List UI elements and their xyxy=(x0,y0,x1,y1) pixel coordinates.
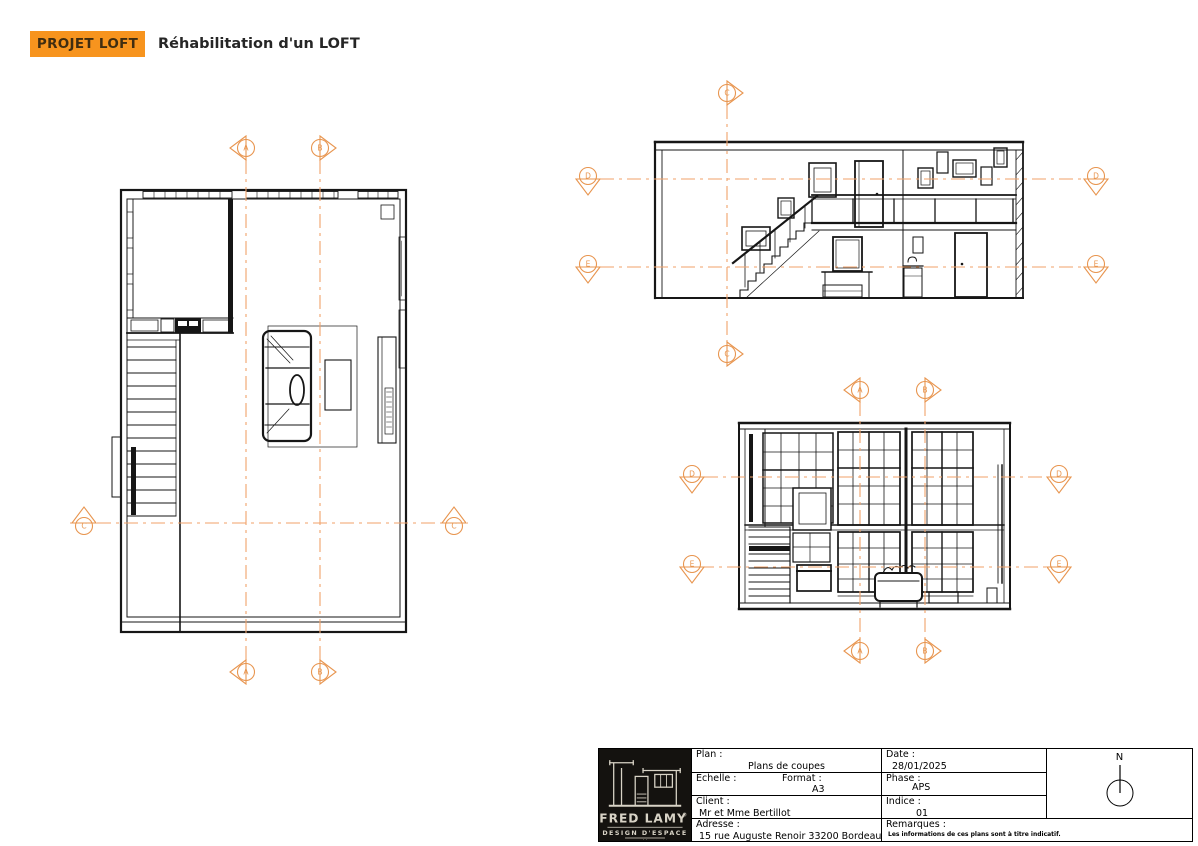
section-marker-e: E xyxy=(1084,256,1108,284)
svg-text:D: D xyxy=(585,172,591,181)
section-marker-e: E xyxy=(680,556,704,584)
svg-text:A: A xyxy=(857,386,863,395)
elevation-view xyxy=(739,423,1010,609)
section-marker-c: C xyxy=(719,342,744,366)
svg-text:A: A xyxy=(243,144,249,153)
section-marker-d: D xyxy=(576,168,600,196)
svg-text:D: D xyxy=(1093,172,1099,181)
drawings-canvas: ABABCCCCDEDEABABDDEE xyxy=(0,0,1198,846)
remarques-label: Remarques : xyxy=(886,820,1188,831)
date-label: Date : xyxy=(886,750,1042,761)
svg-text:E: E xyxy=(586,260,591,269)
svg-text:B: B xyxy=(922,647,927,656)
field-date: Date : 28/01/2025 xyxy=(881,749,1046,772)
section-marker-d: D xyxy=(1084,168,1108,196)
svg-text:E: E xyxy=(1094,260,1099,269)
indice-label: Indice : xyxy=(886,797,1042,808)
field-client: Client : Mr et Mme Bertillot xyxy=(691,795,881,818)
logo-dots: · · xyxy=(643,837,647,841)
section-marker-c: C xyxy=(72,507,96,535)
project-badge-label: PROJET LOFT xyxy=(37,36,138,52)
window-strips xyxy=(143,192,398,199)
field-adresse: Adresse : 15 rue Auguste Renoir 33200 Bo… xyxy=(691,818,881,841)
logo-registered: ® xyxy=(682,812,687,819)
date-value: 28/01/2025 xyxy=(886,761,1042,772)
floor-plan-view xyxy=(112,190,406,632)
section-marker-b: B xyxy=(917,378,942,402)
field-remarques: Remarques : Les informations de ces plan… xyxy=(881,818,1192,841)
format-value: A3 xyxy=(812,784,825,795)
adresse-value: 15 rue Auguste Renoir 33200 Bordeaux xyxy=(696,831,877,842)
svg-text:D: D xyxy=(689,470,695,479)
field-indice: Indice : 01 xyxy=(881,795,1046,818)
plan-value: Plans de coupes xyxy=(696,761,877,772)
section-marker-c: C xyxy=(442,507,466,535)
project-badge: PROJET LOFT xyxy=(30,31,145,57)
svg-text:A: A xyxy=(243,668,249,677)
section-marker-a: A xyxy=(844,378,869,402)
svg-text:C: C xyxy=(724,350,729,359)
indice-value: 01 xyxy=(886,808,1042,819)
adresse-label: Adresse : xyxy=(696,820,877,831)
svg-text:B: B xyxy=(317,668,322,677)
svg-text:E: E xyxy=(1057,560,1062,569)
section-marker-d: D xyxy=(1047,466,1071,494)
svg-text:B: B xyxy=(922,386,927,395)
svg-text:E: E xyxy=(690,560,695,569)
section-marker-e: E xyxy=(576,256,600,284)
svg-text:A: A xyxy=(857,647,863,656)
section-marker-b: B xyxy=(312,136,337,160)
logo: FRED LAMY ® DESIGN D'ESPACE · · xyxy=(599,749,691,841)
remarques-value: Les informations de ces plans sont à tit… xyxy=(886,831,1188,839)
section-marker-c: C xyxy=(719,81,744,105)
section-marker-a: A xyxy=(230,136,255,160)
svg-text:C: C xyxy=(724,89,729,98)
field-phase: Phase : APS xyxy=(881,772,1046,795)
section-marker-e: E xyxy=(1047,556,1071,584)
section-marker-d: D xyxy=(680,466,704,494)
section-marker-a: A xyxy=(230,660,255,684)
field-echelle-format: Echelle : Format : A3 xyxy=(691,772,881,795)
format-label: Format : xyxy=(782,774,822,785)
section-marker-b: B xyxy=(917,639,942,663)
svg-text:C: C xyxy=(81,522,86,531)
plan-sheet: { "sheet": { "background": "#ffffff" }, … xyxy=(0,0,1198,846)
plan-label: Plan : xyxy=(696,750,877,761)
north-indicator: N xyxy=(1046,749,1192,818)
north-arrow-icon xyxy=(1100,763,1140,811)
north-label: N xyxy=(1116,752,1123,763)
sheet-title: Réhabilitation d'un LOFT xyxy=(158,36,360,52)
title-block: FRED LAMY ® DESIGN D'ESPACE · · Plan : P… xyxy=(598,748,1193,842)
section-marker-b: B xyxy=(312,660,337,684)
section-marker-a: A xyxy=(844,639,869,663)
client-label: Client : xyxy=(696,797,877,808)
field-plan: Plan : Plans de coupes xyxy=(691,749,881,772)
section-view xyxy=(655,142,1023,298)
svg-text:B: B xyxy=(317,144,322,153)
client-value: Mr et Mme Bertillot xyxy=(696,808,877,819)
logo-drawing: FRED LAMY ® DESIGN D'ESPACE · · xyxy=(600,749,690,841)
logo-brand: FRED LAMY xyxy=(600,811,687,825)
svg-text:C: C xyxy=(451,522,456,531)
svg-text:D: D xyxy=(1056,470,1062,479)
